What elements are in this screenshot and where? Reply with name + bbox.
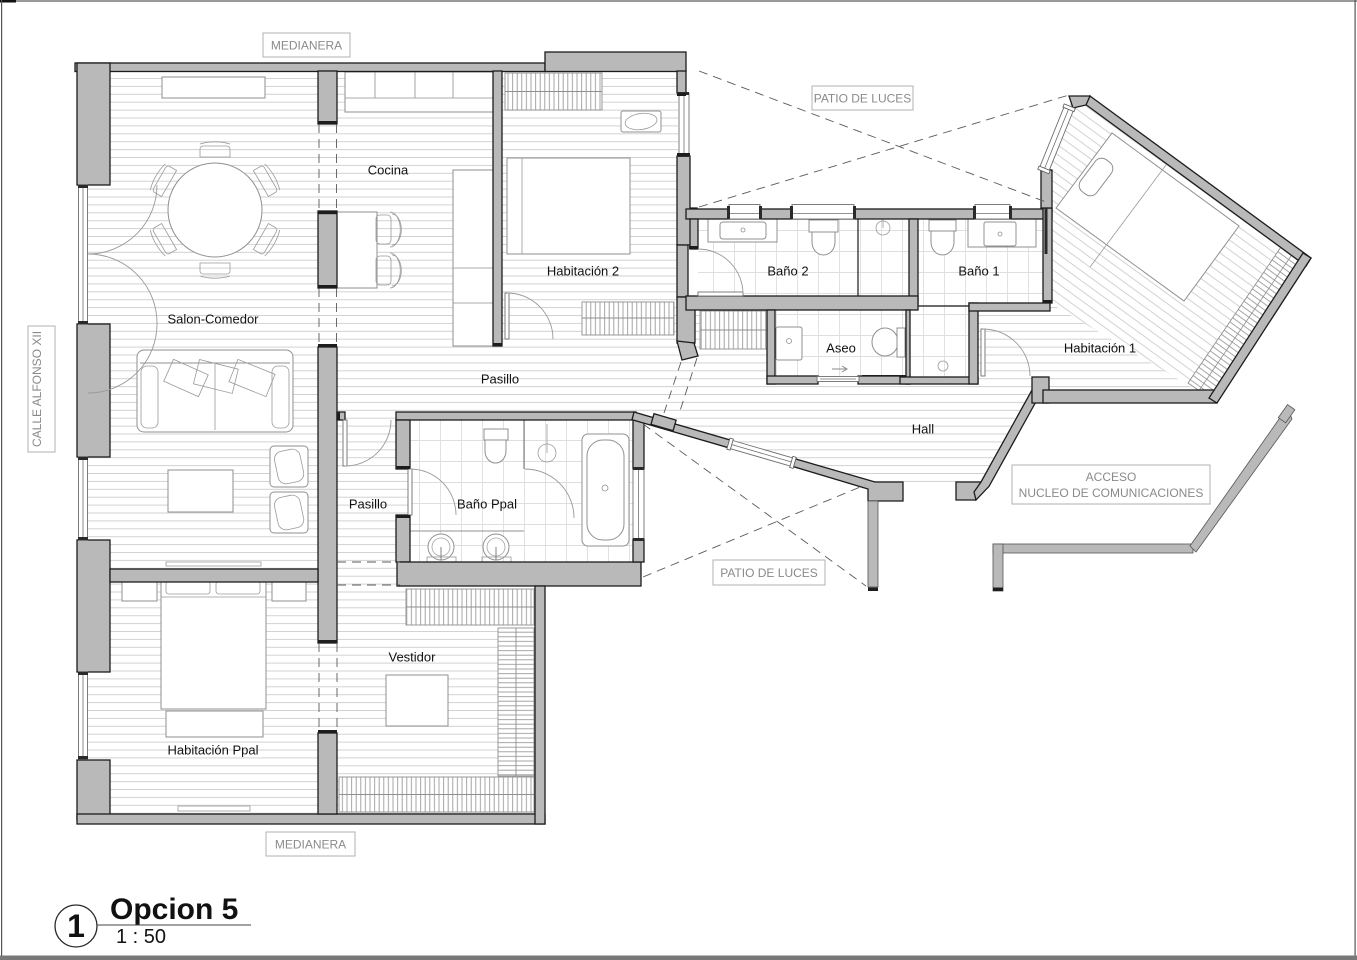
svg-text:PATIO DE LUCES: PATIO DE LUCES <box>814 92 912 106</box>
svg-text:Vestidor: Vestidor <box>389 650 437 665</box>
svg-text:Salon-Comedor: Salon-Comedor <box>167 312 259 327</box>
svg-text:Aseo: Aseo <box>826 341 856 356</box>
svg-text:Habitación 1: Habitación 1 <box>1064 341 1136 356</box>
svg-text:Baño 2: Baño 2 <box>767 264 808 279</box>
svg-text:PATIO DE LUCES: PATIO DE LUCES <box>720 566 818 580</box>
svg-text:1: 1 <box>67 908 85 944</box>
svg-text:NUCLEO DE COMUNICACIONES: NUCLEO DE COMUNICACIONES <box>1019 486 1204 500</box>
svg-text:Opcion 5: Opcion 5 <box>110 893 238 926</box>
svg-text:MEDIANERA: MEDIANERA <box>271 39 342 53</box>
svg-text:ACCESO: ACCESO <box>1086 470 1137 484</box>
svg-text:Baño Ppal: Baño Ppal <box>457 497 517 512</box>
svg-text:Pasillo: Pasillo <box>349 497 387 512</box>
svg-text:Habitación 2: Habitación 2 <box>547 264 619 279</box>
svg-text:Pasillo: Pasillo <box>481 372 519 387</box>
svg-text:MEDIANERA: MEDIANERA <box>275 838 346 852</box>
svg-text:Cocina: Cocina <box>368 163 409 178</box>
svg-text:Hall: Hall <box>912 422 935 437</box>
svg-text:1 : 50: 1 : 50 <box>116 926 166 948</box>
svg-text:CALLE ALFONSO XII: CALLE ALFONSO XII <box>30 331 44 447</box>
svg-text:Habitación Ppal: Habitación Ppal <box>167 743 258 758</box>
svg-text:Baño 1: Baño 1 <box>958 264 999 279</box>
